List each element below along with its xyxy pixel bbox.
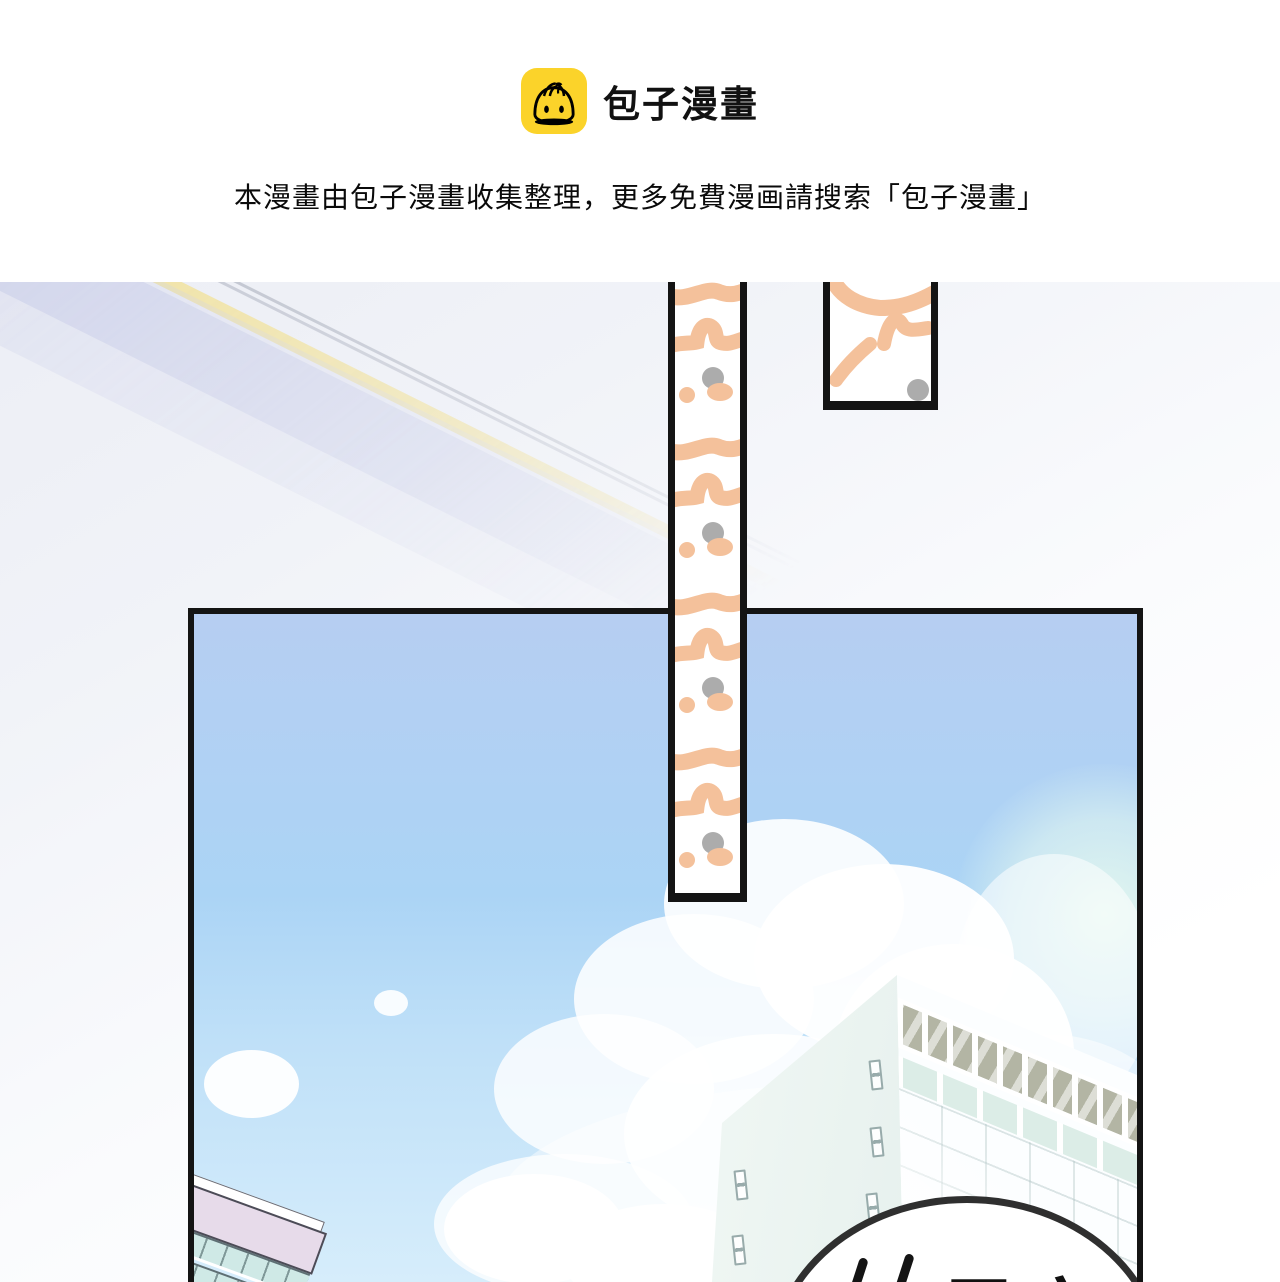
building-window [869, 1126, 884, 1157]
inset-panel-cat-tail-tall [668, 282, 747, 902]
tabby-stripe-pattern [675, 282, 740, 893]
cloud [204, 1050, 299, 1118]
main-panel: 早安 [188, 608, 1143, 1282]
partial-glyph-stroke [890, 1253, 915, 1282]
building-window [733, 1169, 748, 1200]
baozi-logo[interactable] [521, 68, 587, 134]
manga-reader-page: 包子漫畫 本漫畫由包子漫畫收集整理，更多免費漫画請搜索「包子漫畫」 [0, 0, 1280, 1282]
partial-glyph-stroke [844, 1257, 869, 1282]
site-header: 包子漫畫 本漫畫由包子漫畫收集整理，更多免費漫画請搜索「包子漫畫」 [0, 0, 1280, 282]
site-logo-row: 包子漫畫 [0, 68, 1280, 134]
rooftop-building [188, 1170, 332, 1282]
site-title: 包子漫畫 [603, 74, 759, 128]
cloud [374, 990, 408, 1016]
building-window [868, 1059, 883, 1090]
baozi-bun-icon [524, 71, 584, 131]
collection-notice: 本漫畫由包子漫畫收集整理，更多免費漫画請搜索「包子漫畫」 [0, 176, 1280, 216]
building-window [731, 1234, 746, 1265]
speech-bubble-text: 早安 [941, 1253, 1109, 1282]
tabby-stripe-pattern [830, 282, 931, 401]
inset-panel-cat-tail-small [823, 282, 938, 410]
